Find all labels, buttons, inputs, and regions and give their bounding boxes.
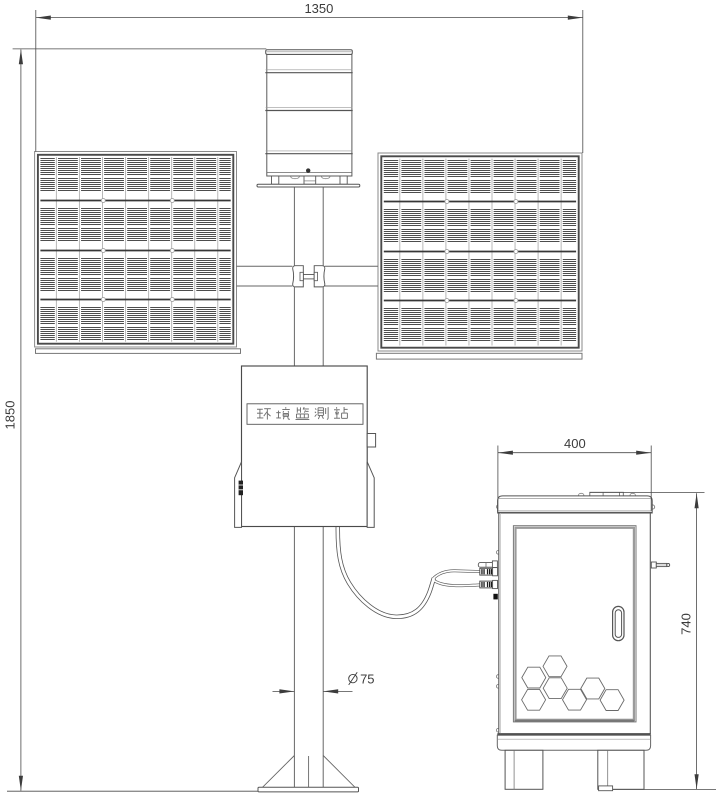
svg-text:740: 740 xyxy=(678,613,693,635)
svg-text:1350: 1350 xyxy=(304,1,333,16)
svg-text:1850: 1850 xyxy=(2,401,17,430)
svg-text:75: 75 xyxy=(360,672,374,687)
svg-text:400: 400 xyxy=(564,436,586,451)
